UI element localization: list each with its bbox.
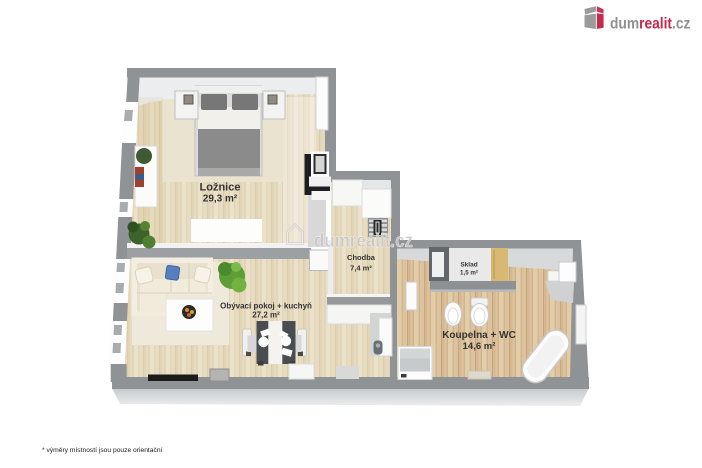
svg-text:Sklad: Sklad <box>460 262 477 269</box>
svg-text:27,2 m²: 27,2 m² <box>252 311 280 320</box>
svg-text:14,6 m²: 14,6 m² <box>463 341 496 352</box>
svg-text:Chodba: Chodba <box>347 253 376 262</box>
svg-text:dumrealit.cz: dumrealit.cz <box>610 16 690 33</box>
svg-text:Ložnice: Ložnice <box>200 182 241 194</box>
svg-text:* výměry místností jsou pouze: * výměry místností jsou pouze orientační <box>42 447 163 454</box>
svg-text:7,4 m²: 7,4 m² <box>350 264 372 273</box>
svg-text:Obývací pokoj + kuchyň: Obývací pokoj + kuchyň <box>220 302 312 311</box>
svg-text:dumrealit.cz: dumrealit.cz <box>314 231 413 252</box>
svg-text:29,3 m²: 29,3 m² <box>203 194 238 205</box>
svg-text:1,5 m²: 1,5 m² <box>460 270 478 277</box>
svg-text:Koupelna + WC: Koupelna + WC <box>442 330 516 341</box>
